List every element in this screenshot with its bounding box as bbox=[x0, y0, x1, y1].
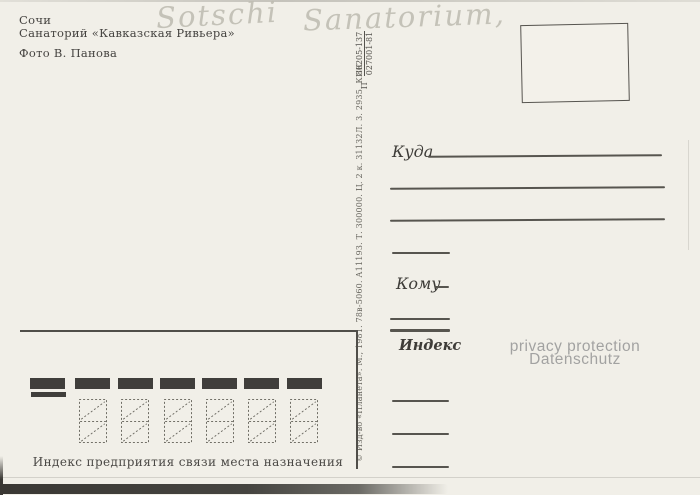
index-bar bbox=[244, 378, 279, 389]
watermark-line-2: Datenschutz bbox=[480, 353, 670, 366]
index-label: Индекс bbox=[399, 337, 461, 354]
index-code-denominator: 027001-81 bbox=[365, 31, 374, 76]
card-bottom-edge bbox=[0, 477, 700, 478]
index-bar bbox=[30, 378, 65, 389]
scan-left-edge bbox=[0, 456, 3, 495]
handwriting-word-1: Sotschi bbox=[155, 0, 279, 35]
digit-stencil-box bbox=[78, 398, 108, 444]
digit-stencil-box bbox=[120, 398, 150, 444]
postcard-back: Сочи Санаторий «Кавказская Ривьера» Фото… bbox=[0, 0, 700, 495]
address-line bbox=[435, 286, 449, 288]
index-bar bbox=[287, 378, 322, 389]
address-line bbox=[390, 218, 665, 221]
handwriting-word-2: Sanatorium, bbox=[302, 0, 506, 38]
address-line bbox=[392, 466, 449, 468]
index-bar bbox=[118, 378, 153, 389]
privacy-watermark: privacy protection Datenschutz bbox=[480, 340, 670, 366]
address-line bbox=[390, 186, 665, 189]
address-line bbox=[392, 433, 449, 435]
digit-stencil-box bbox=[205, 398, 235, 444]
address-line bbox=[428, 154, 662, 158]
index-zone-caption: Индекс предприятия связи места назначени… bbox=[20, 455, 356, 469]
scan-right-edge bbox=[688, 140, 689, 250]
address-line bbox=[390, 318, 450, 320]
stamp-box bbox=[520, 23, 630, 103]
address-line bbox=[392, 400, 449, 402]
address-line bbox=[392, 252, 450, 254]
digit-stencil-box bbox=[289, 398, 319, 444]
kuda-label: Куда bbox=[392, 142, 433, 161]
index-bar bbox=[202, 378, 237, 389]
digit-stencil-box bbox=[247, 398, 277, 444]
digit-stencil-box bbox=[163, 398, 193, 444]
index-bar bbox=[160, 378, 195, 389]
address-line bbox=[390, 329, 450, 332]
scan-bottom-shadow bbox=[0, 484, 448, 494]
index-marker-bar bbox=[31, 392, 66, 397]
komu-label: Кому bbox=[396, 274, 441, 293]
caption-photographer: Фото В. Панова bbox=[19, 47, 235, 60]
index-bar bbox=[75, 378, 110, 389]
